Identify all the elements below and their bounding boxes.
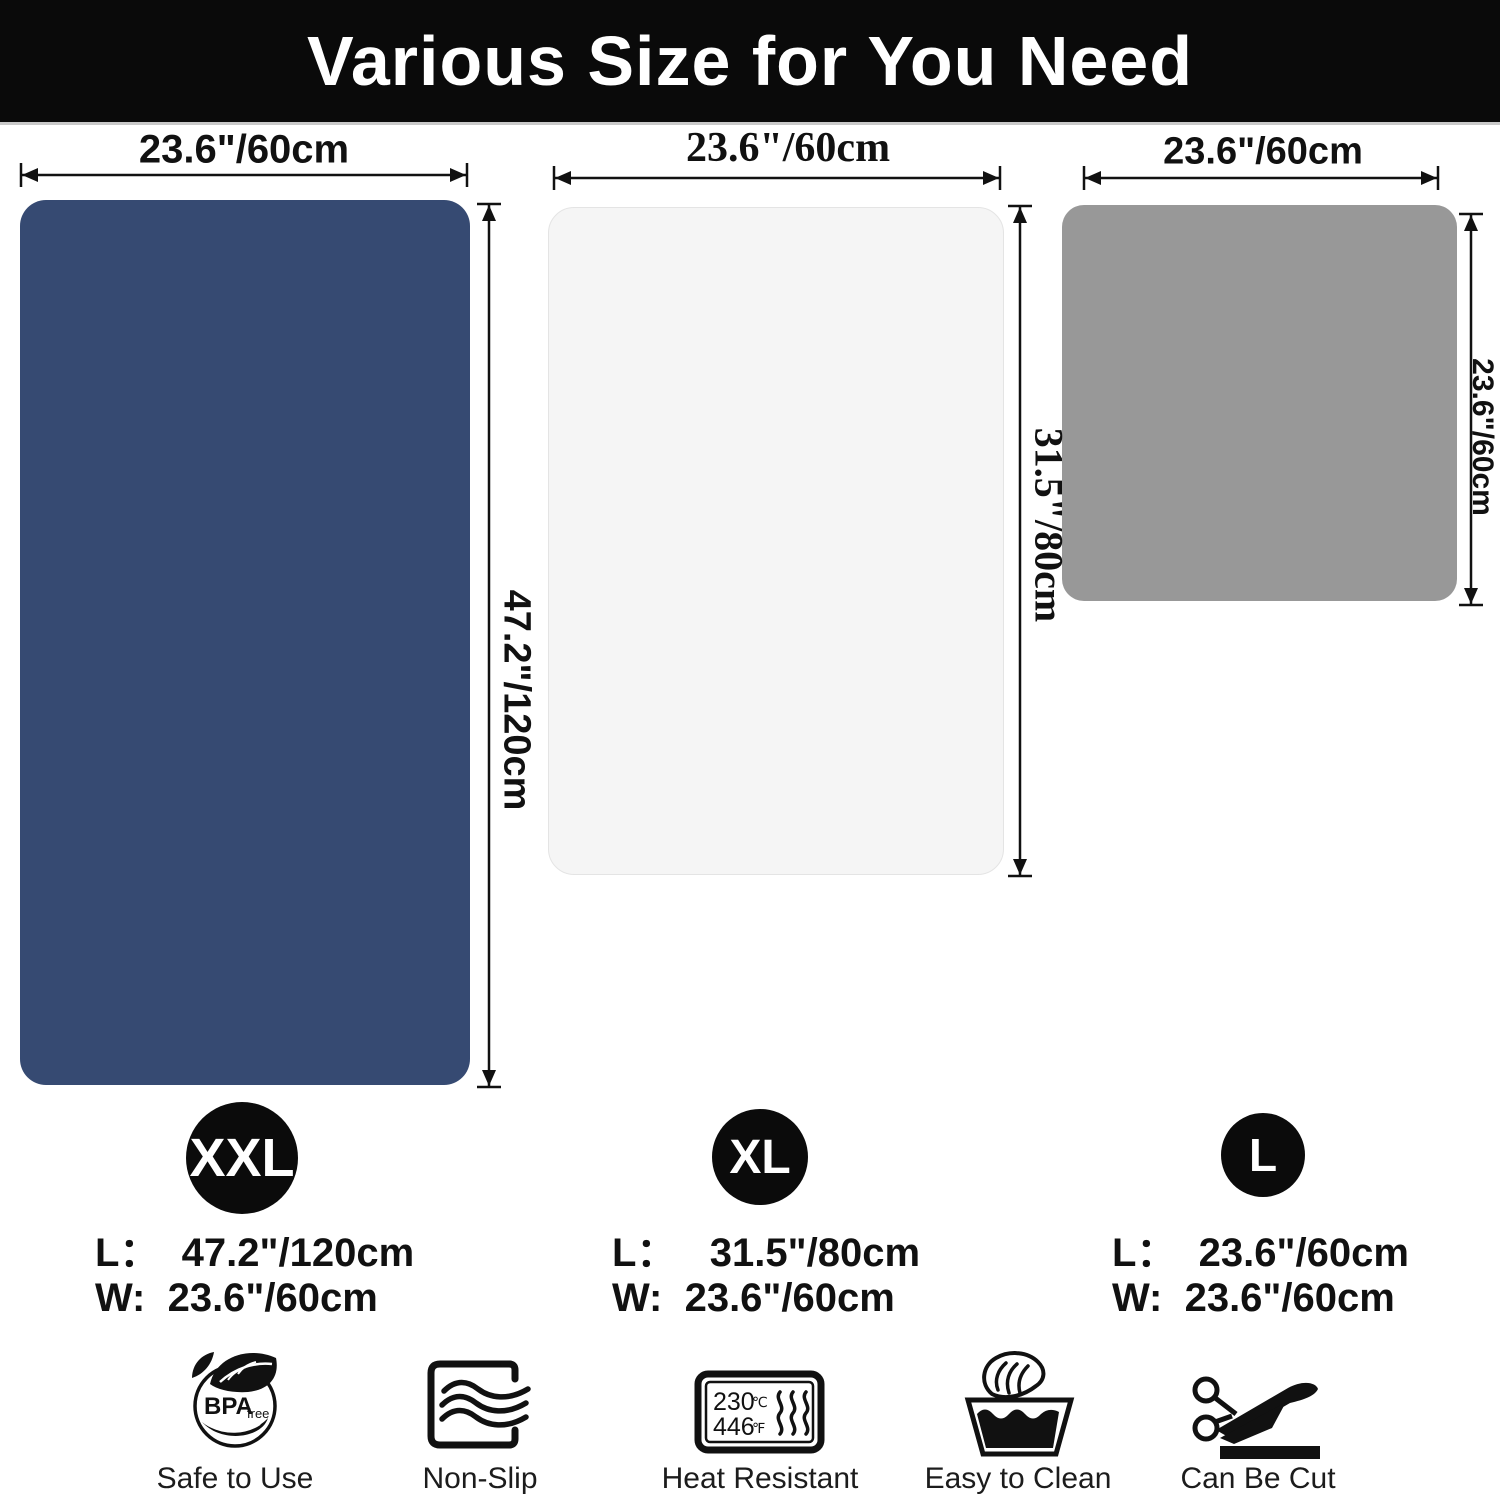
scissors-icon xyxy=(1190,1366,1325,1466)
product-size-infographic: Various Size for You Need xyxy=(0,0,1500,1500)
header-bar: Various Size for You Need xyxy=(0,0,1500,125)
height-label-l: 23.6"/60cm xyxy=(1465,358,1499,516)
svg-text:BPA: BPA xyxy=(204,1393,253,1420)
size-badge-xxl: XXL xyxy=(186,1102,298,1214)
size-length-xl: L： 31.5"/80cm xyxy=(612,1220,920,1278)
feature-label-safe-to-use: Safe to Use xyxy=(157,1462,314,1496)
non-slip-icon xyxy=(424,1357,539,1452)
svg-text:℃: ℃ xyxy=(752,1395,768,1411)
size-length-xxl: L： 47.2"/120cm xyxy=(95,1220,414,1278)
feature-label-non-slip: Non-Slip xyxy=(422,1462,537,1496)
height-label-xxl: 47.2"/120cm xyxy=(495,590,538,811)
size-length-l: L： 23.6"/60cm xyxy=(1112,1220,1409,1278)
feature-label-easy-to-clean: Easy to Clean xyxy=(925,1462,1112,1496)
heat-resistant-icon: 230 ℃ 446 ℉ xyxy=(692,1366,827,1458)
page-title: Various Size for You Need xyxy=(307,21,1193,101)
svg-text:free: free xyxy=(247,1406,269,1421)
svg-text:℉: ℉ xyxy=(752,1421,765,1437)
svg-text:446: 446 xyxy=(713,1413,755,1441)
size-badge-xl: XL xyxy=(712,1109,808,1205)
mat-xxl xyxy=(20,200,470,1085)
svg-text:230: 230 xyxy=(713,1388,755,1416)
mat-l xyxy=(1062,205,1457,601)
height-label-xl: 31.5"/80cm xyxy=(1026,428,1073,622)
size-width-l: W: 23.6"/60cm xyxy=(1112,1276,1395,1321)
size-badge-l: L xyxy=(1221,1113,1305,1197)
feature-label-heat-resistant: Heat Resistant xyxy=(662,1462,859,1496)
width-label-l: 23.6"/60cm xyxy=(1163,131,1363,174)
bpa-free-icon: BPA free xyxy=(180,1340,290,1460)
size-width-xxl: W: 23.6"/60cm xyxy=(95,1276,378,1321)
width-label-xl: 23.6"/60cm xyxy=(686,124,890,172)
wash-hand-icon xyxy=(958,1348,1078,1460)
size-width-xl: W: 23.6"/60cm xyxy=(612,1276,895,1321)
feature-label-can-be-cut: Can Be Cut xyxy=(1180,1462,1335,1496)
width-label-xxl: 23.6"/60cm xyxy=(139,128,349,173)
mat-xl xyxy=(548,207,1004,875)
